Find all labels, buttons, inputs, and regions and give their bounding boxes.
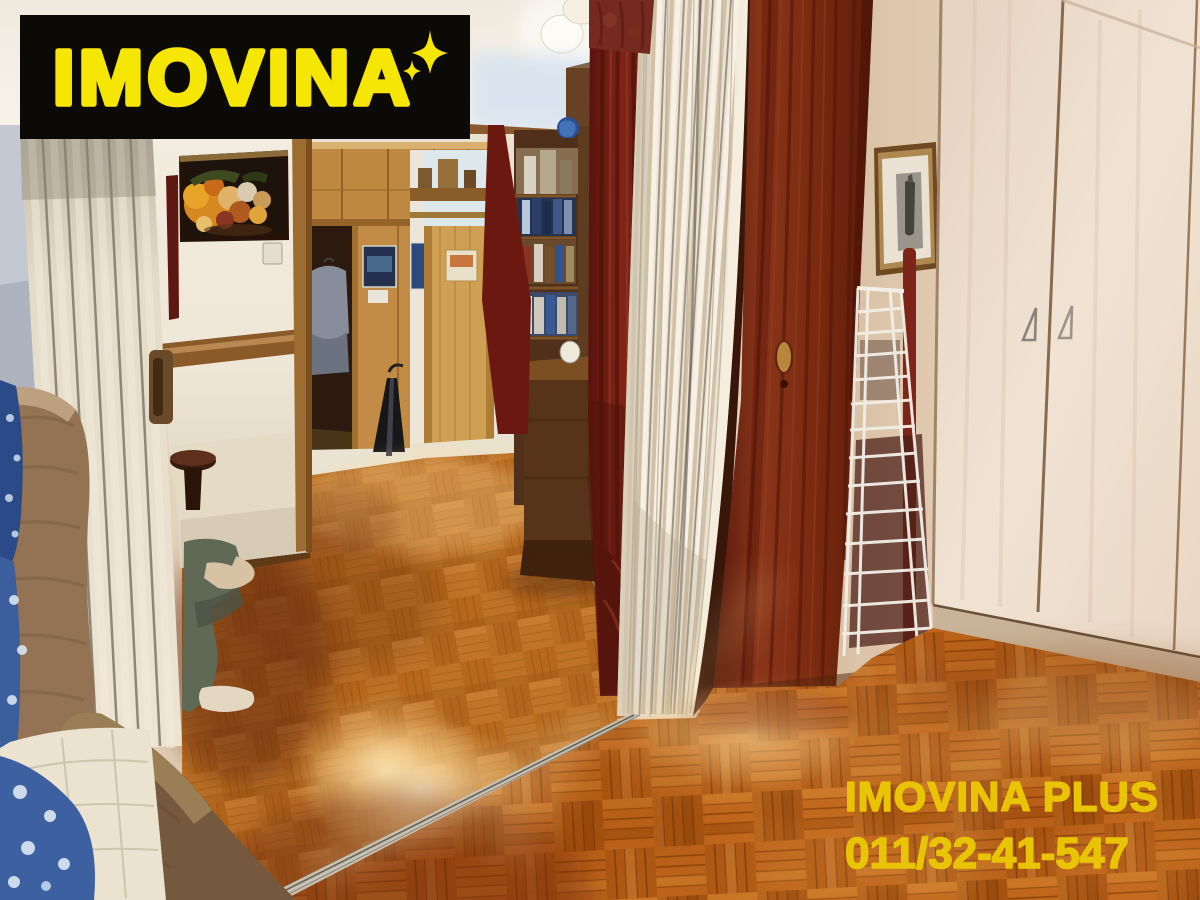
svg-text:011/32-41-547: 011/32-41-547 bbox=[845, 829, 1129, 878]
svg-text:IMOVINA: IMOVINA bbox=[53, 35, 414, 121]
svg-text:IMOVINA PLUS: IMOVINA PLUS bbox=[845, 773, 1159, 820]
